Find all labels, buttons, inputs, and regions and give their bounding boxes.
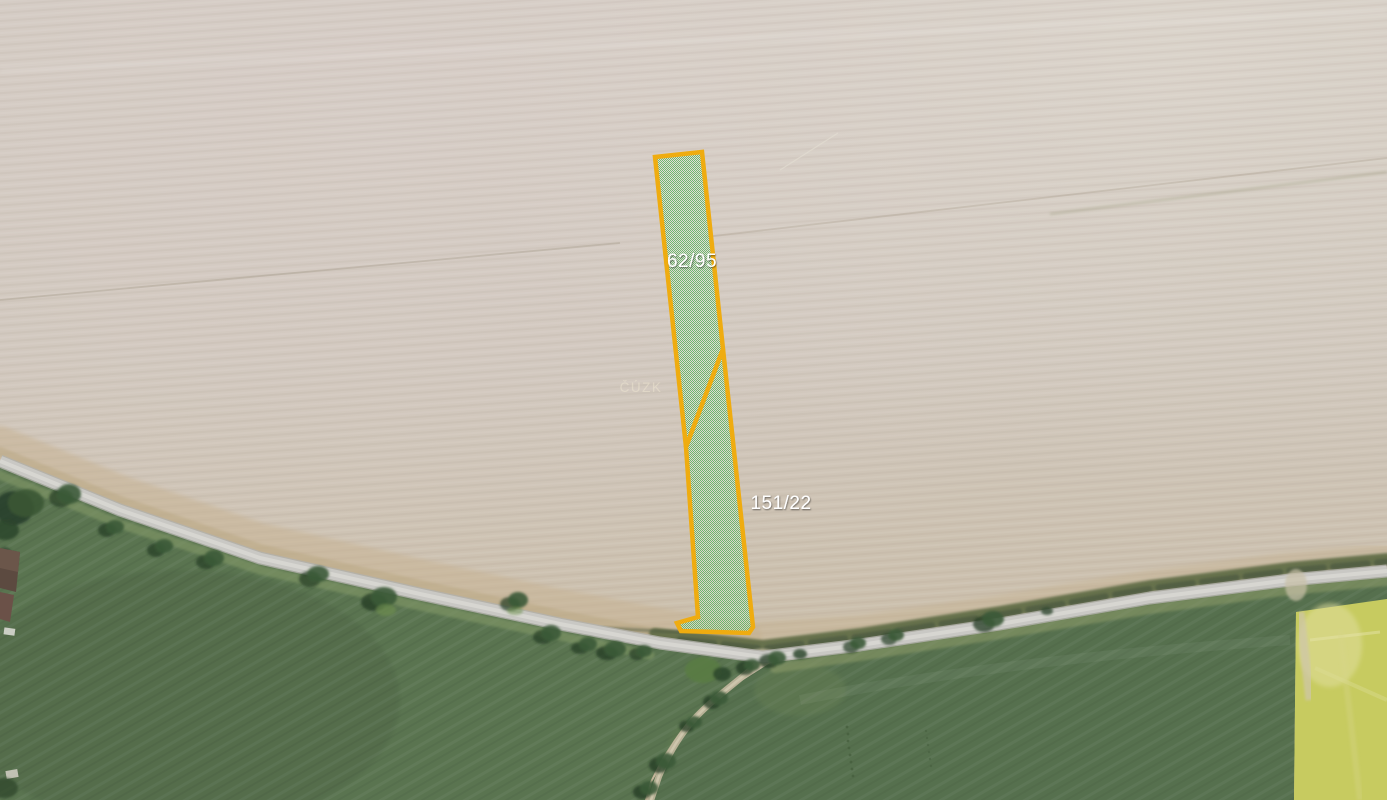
parcel-label-62-95: 62/95 — [667, 251, 717, 272]
cuzk-watermark: ČÚZK — [620, 380, 663, 395]
rapeseed-field — [1294, 599, 1387, 800]
aerial-map-view[interactable]: 62/95 151/22 ČÚZK — [0, 0, 1387, 800]
parcel-label-151-22: 151/22 — [750, 493, 811, 514]
map-canvas: 62/95 151/22 ČÚZK — [0, 0, 1387, 800]
